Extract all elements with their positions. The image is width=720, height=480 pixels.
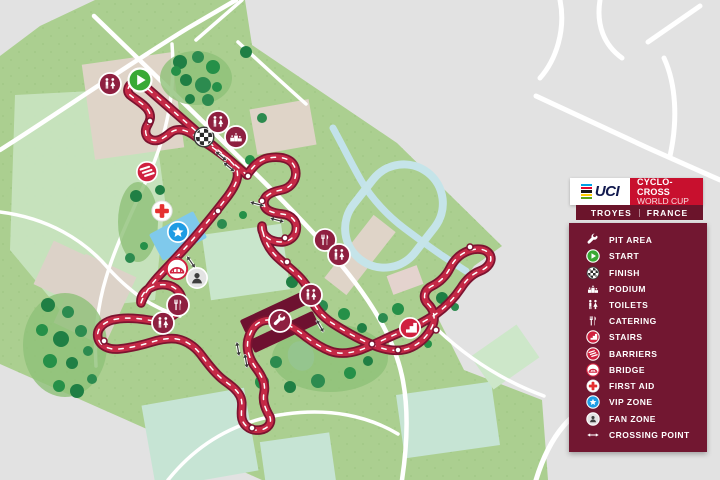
legend-item-start: START bbox=[586, 249, 707, 263]
marker-toilets bbox=[328, 244, 350, 266]
legend-label: PODIUM bbox=[609, 284, 646, 294]
crossing-icon bbox=[586, 428, 600, 442]
fanzone-icon bbox=[586, 412, 600, 426]
uci-rainbow-stripes bbox=[581, 184, 592, 200]
legend-item-barriers: BARRIERS bbox=[586, 347, 707, 361]
marker-toilets bbox=[99, 73, 121, 95]
toilets-icon bbox=[586, 298, 600, 312]
legend-label: START bbox=[609, 251, 639, 261]
legend-label: VIP ZONE bbox=[609, 397, 653, 407]
marker-catering bbox=[167, 294, 189, 316]
legend-item-crossing-point: CROSSING POINT bbox=[586, 428, 707, 442]
legend-item-pit-area: PIT AREA bbox=[586, 233, 707, 247]
pit-icon bbox=[586, 233, 600, 247]
marker-toilets bbox=[152, 312, 174, 334]
vip-icon bbox=[586, 395, 600, 409]
firstaid-icon bbox=[586, 379, 600, 393]
legend-label: FINISH bbox=[609, 268, 640, 278]
legend-item-first-aid: FIRST AID bbox=[586, 379, 707, 393]
legend-label: CROSSING POINT bbox=[609, 430, 690, 440]
marker-barriers bbox=[137, 162, 157, 182]
finish-icon bbox=[586, 266, 600, 280]
event-location-bar: TROYES FRANCE bbox=[576, 205, 703, 220]
marker-stairs bbox=[400, 318, 420, 338]
map-legend: PIT AREASTARTFINISHPODIUMTOILETSCATERING… bbox=[569, 223, 707, 452]
legend-label: CATERING bbox=[609, 316, 657, 326]
stairs-icon bbox=[586, 330, 600, 344]
start-icon bbox=[586, 249, 600, 263]
legend-item-catering: CATERING bbox=[586, 314, 707, 328]
marker-vip bbox=[168, 222, 188, 242]
course-map-poster: UCI CYCLO-CROSS WORLD CUP TROYES FRANCE … bbox=[0, 0, 720, 480]
legend-item-vip-zone: VIP ZONE bbox=[586, 395, 707, 409]
marker-toilets bbox=[300, 284, 322, 306]
legend-item-stairs: STAIRS bbox=[586, 330, 707, 344]
uci-wordmark: UCI bbox=[595, 183, 619, 200]
uci-logo: UCI bbox=[570, 178, 630, 205]
series-line1: CYCLO-CROSS bbox=[637, 177, 703, 197]
marker-start bbox=[129, 69, 152, 92]
catering-icon bbox=[586, 314, 600, 328]
legend-item-finish: FINISH bbox=[586, 266, 707, 280]
legend-item-toilets: TOILETS bbox=[586, 298, 707, 312]
legend-label: BRIDGE bbox=[609, 365, 645, 375]
event-city: TROYES bbox=[591, 208, 632, 218]
podium-icon bbox=[586, 282, 600, 296]
event-country: FRANCE bbox=[647, 208, 688, 218]
legend-item-bridge: BRIDGE bbox=[586, 363, 707, 377]
legend-item-podium: PODIUM bbox=[586, 282, 707, 296]
marker-firstaid bbox=[152, 201, 172, 221]
legend-item-fan-zone: FAN ZONE bbox=[586, 412, 707, 426]
legend-label: BARRIERS bbox=[609, 349, 657, 359]
legend-label: TOILETS bbox=[609, 300, 648, 310]
marker-pit bbox=[269, 310, 291, 332]
event-branding: UCI CYCLO-CROSS WORLD CUP bbox=[570, 178, 703, 205]
location-separator bbox=[639, 209, 640, 217]
marker-toilets bbox=[207, 111, 229, 133]
legend-label: FAN ZONE bbox=[609, 414, 656, 424]
legend-label: PIT AREA bbox=[609, 235, 652, 245]
series-title: CYCLO-CROSS WORLD CUP bbox=[630, 178, 703, 205]
marker-podium bbox=[225, 126, 247, 148]
legend-label: FIRST AID bbox=[609, 381, 655, 391]
bridge-icon bbox=[586, 363, 600, 377]
barriers-icon bbox=[586, 347, 600, 361]
marker-bridge bbox=[167, 259, 187, 279]
legend-label: STAIRS bbox=[609, 332, 643, 342]
marker-fanzone bbox=[187, 268, 207, 288]
